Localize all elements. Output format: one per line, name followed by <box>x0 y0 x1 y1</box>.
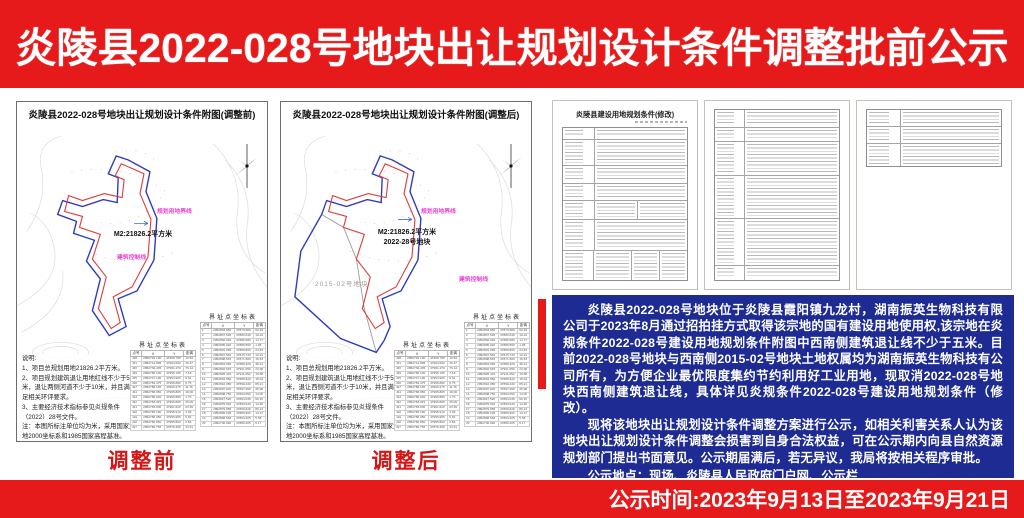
legend-planning-boundary: 规划用地界线 <box>157 206 192 215</box>
coordinate-row: 202952736.99047886.2050.17 <box>465 422 530 427</box>
table-row <box>563 183 687 200</box>
table-row <box>715 218 839 266</box>
compass-icon <box>234 142 260 190</box>
coordinate-table-left: 界址点坐标表 点号X Y距离 J282952794.19047968.76513… <box>394 340 460 431</box>
map-title-before: 炎陵县2022-028号地块出让规划设计条件附图(调整前) <box>17 107 267 121</box>
parcel-area-label: M2:21826.2平方米 2022-28号地块 <box>347 228 467 248</box>
table-row <box>867 110 1001 126</box>
coordinate-table-left: 界址点坐标表 点号X Y距离 J282952794.19047968.76513… <box>130 340 196 431</box>
note-line: 2、项目规划建筑退让用地红线不少于5米，退让西侧河道不少于10米，并且满足相关环… <box>286 374 400 403</box>
table-row <box>867 143 1001 166</box>
notice-paragraph: 炎陵县2022-028号地块位于炎陵县霞阳镇九龙村，湖南振英生物科技有限公司于2… <box>563 302 1003 417</box>
table-row <box>563 250 687 280</box>
conditions-table-continued <box>714 109 840 281</box>
public-notice-poster: 炎陵县2022-028号地块出让规划设计条件调整批前公示 <box>0 0 1024 518</box>
table-row <box>867 126 1001 143</box>
bottom-banner: 公示时间:2023年9月13日至2023年9月21日 <box>0 480 1024 518</box>
notice-title: 炎陵县2022-028号地块出让规划设计条件调整批前公示 <box>15 14 1008 74</box>
compass-icon <box>498 142 524 190</box>
table-row <box>715 141 839 175</box>
table-row <box>563 139 687 165</box>
coordinate-table-title: 界址点坐标表 <box>394 340 460 349</box>
planning-conditions-page-2 <box>704 100 850 290</box>
legend-building-control: 建筑控制线 <box>117 252 146 261</box>
planning-conditions-title: 炎陵县建设用地规划条件(修改) <box>553 110 697 120</box>
planning-conditions-page-3 <box>856 100 1012 290</box>
coordinate-table-title: 界址点坐标表 <box>200 312 266 321</box>
coordinate-table-title: 界址点坐标表 <box>130 340 196 349</box>
conditions-table-end <box>866 109 1002 167</box>
note-line: 3、主要经济技术指标参见炎规条件（2022）28号文件。 <box>22 403 136 423</box>
coordinate-table-title: 界址点坐标表 <box>464 312 530 321</box>
page-subheader-line <box>635 121 687 123</box>
top-banner: 炎陵县2022-028号地块出让规划设计条件调整批前公示 <box>0 0 1024 88</box>
note-line: 注：本图所标注单位均为米，采用国家大地2000坐标系和1985国家高程基准。 <box>286 422 400 442</box>
table-row <box>563 165 687 183</box>
notice-paragraphs: 炎陵县2022-028号地块位于炎陵县霞阳镇九龙村，湖南振英生物科技有限公司于2… <box>563 302 1003 466</box>
map-notes-before: 说明:1、项目总规划用地21826.2平方米。2、项目规划建筑退让用地红线不少于… <box>22 354 136 442</box>
caption-after: 调整后 <box>280 447 532 473</box>
conditions-table <box>562 127 688 281</box>
table-row <box>563 200 687 219</box>
parcel-area-text: M2:21826.2平方米 <box>347 228 467 238</box>
note-line: 注：本图所标注单位均为米，采用国家大地2000坐标系和1985国家高程基准。 <box>22 422 136 442</box>
note-line: 2、项目规划建筑退让用地红线不少于5米，退让两侧河道不少于10米，并且满足相关环… <box>22 374 136 403</box>
notice-paragraph: 现将该地块出让规划设计条件调整方案进行公示，如相关利害关系人认为该地块出让规划设… <box>563 417 1003 466</box>
table-row <box>715 265 839 280</box>
map-panel-after: 炎陵县2022-028号地块出让规划设计条件附图(调整后) M2:21826.2… <box>280 101 532 442</box>
legend-building-control: 建筑控制线 <box>459 274 488 283</box>
coordinate-row: 202952736.99047886.2050.17 <box>201 422 266 427</box>
table-row <box>715 127 839 142</box>
note-line: 说明: <box>286 354 400 364</box>
bottom-publicity-period: 公示时间:2023年9月13日至2023年9月21日 <box>608 484 1010 514</box>
red-divider-bar <box>538 299 546 389</box>
planning-conditions-page-1: 炎陵县建设用地规划条件(修改) <box>552 100 698 290</box>
note-line: 1、项目总规划用地21826.2平方米。 <box>22 364 136 374</box>
table-row <box>715 110 839 127</box>
table-row <box>563 219 687 249</box>
note-line: 3、主要经济技术指标参见炎规条件（2022）28号文件。 <box>286 403 400 423</box>
coordinate-table-right: 界址点坐标表 点号X Y距离 12952804.05047879.58052.9… <box>464 312 530 427</box>
map-panel-before: 炎陵县2022-028号地块出让规划设计条件附图(调整前) M2:21826.2… <box>16 101 268 442</box>
note-line: 说明: <box>22 354 136 364</box>
map-notes-after: 说明:1、项目总规划用地21826.2平方米。2、项目规划建筑退让用地红线不少于… <box>286 354 400 442</box>
note-line: 1、项目总规划用地21826.2平方米。 <box>286 364 400 374</box>
neighbor-parcel-label: 2015-02号地块 <box>315 278 368 288</box>
table-row <box>563 128 687 139</box>
planning-boundary-red <box>65 164 151 329</box>
coordinate-row: J172952766.75647876.39013.51 <box>131 425 196 430</box>
table-row <box>715 175 839 217</box>
coordinate-table-right: 界址点坐标表 点号X Y距离 12952804.05047879.58052.9… <box>200 312 266 427</box>
map-title-after: 炎陵县2022-028号地块出让规划设计条件附图(调整后) <box>281 107 531 121</box>
caption-before: 调整前 <box>16 447 268 473</box>
parcel-area-label: M2:21826.2平方米 <box>83 230 203 240</box>
legend-planning-boundary: 规划用地界线 <box>421 206 456 215</box>
coordinate-row: J172952766.75647876.39013.51 <box>395 425 460 430</box>
parcel-number-text: 2022-28号地块 <box>347 238 467 248</box>
notice-text-box: 炎陵县2022-028号地块位于炎陵县霞阳镇九龙村，湖南振英生物科技有限公司于2… <box>552 295 1014 478</box>
